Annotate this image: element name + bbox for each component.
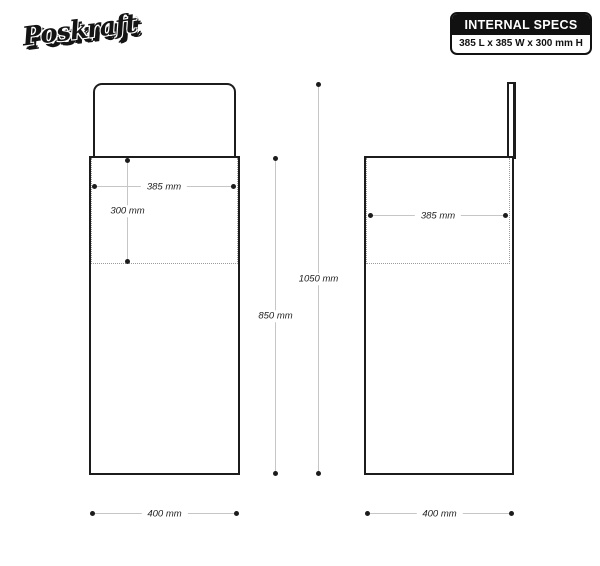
side-view-back-panel	[507, 82, 516, 159]
dim-endpoint-dot	[234, 511, 239, 516]
dim-side-internal-depth: 385 mm	[368, 211, 508, 220]
dim-label-front-base-width: 400 mm	[141, 508, 187, 520]
dim-front-internal-height: 300 mm	[123, 158, 132, 264]
dim-front-internal-width: 385 mm	[92, 182, 236, 191]
side-view-body-outline	[364, 156, 514, 475]
dim-front-total-height: 1050 mm	[314, 82, 323, 476]
dim-label-side-internal-depth: 385 mm	[415, 210, 461, 222]
dim-endpoint-dot	[125, 259, 130, 264]
dim-endpoint-dot	[125, 158, 130, 163]
dim-side-base-depth: 400 mm	[365, 509, 514, 518]
dim-endpoint-dot	[316, 471, 321, 476]
dim-endpoint-dot	[509, 511, 514, 516]
dim-label-front-total-height: 1050 mm	[293, 273, 345, 285]
dim-endpoint-dot	[231, 184, 236, 189]
dim-label-side-base-depth: 400 mm	[416, 508, 462, 520]
dim-endpoint-dot	[365, 511, 370, 516]
brand-logo: Poskraft	[21, 6, 164, 53]
dim-endpoint-dot	[273, 471, 278, 476]
internal-specs-box: INTERNAL SPECS 385 L x 385 W x 300 mm H	[450, 12, 592, 55]
dim-endpoint-dot	[316, 82, 321, 87]
dim-endpoint-dot	[503, 213, 508, 218]
dim-front-body-height: 850 mm	[271, 156, 280, 476]
dim-label-front-internal-width: 385 mm	[141, 181, 187, 193]
dim-label-front-body-height: 850 mm	[252, 310, 298, 322]
dim-front-base-width: 400 mm	[90, 509, 239, 518]
spec-sheet: Poskraft INTERNAL SPECS 385 L x 385 W x …	[0, 0, 600, 566]
specs-box-value: 385 L x 385 W x 300 mm H	[452, 35, 590, 53]
dim-endpoint-dot	[92, 184, 97, 189]
specs-box-title: INTERNAL SPECS	[452, 14, 590, 35]
dim-label-front-internal-height: 300 mm	[104, 205, 150, 217]
front-view-top-panel	[93, 83, 236, 159]
dim-endpoint-dot	[90, 511, 95, 516]
dim-endpoint-dot	[368, 213, 373, 218]
dim-endpoint-dot	[273, 156, 278, 161]
front-view-body-outline	[89, 156, 240, 475]
